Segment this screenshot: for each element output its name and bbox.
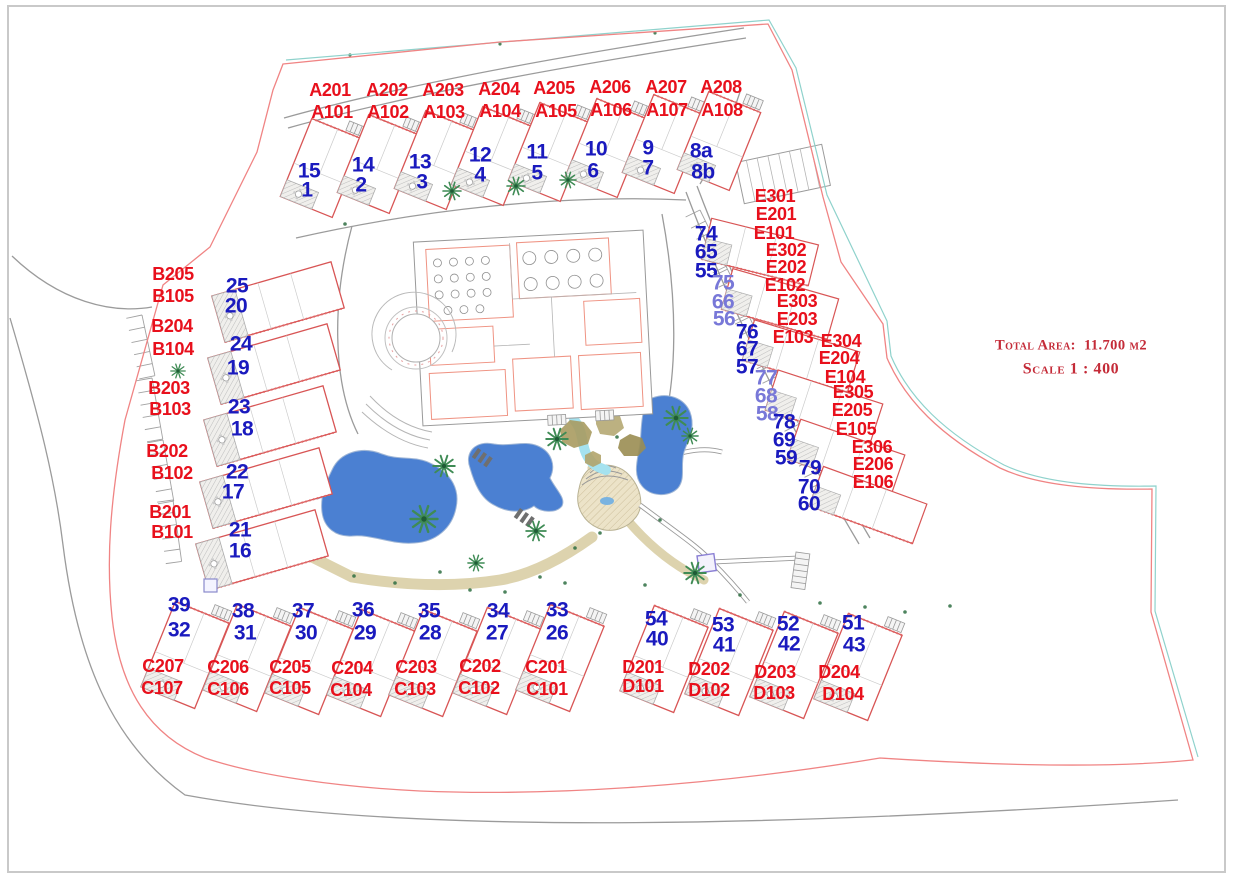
total-area-value: 11.700 м2 — [1084, 338, 1147, 354]
utility-box — [204, 579, 217, 592]
pool-middle — [468, 443, 562, 511]
scale-text: Scale 1 : 400 — [995, 361, 1147, 379]
site-plan-drawing — [0, 0, 1235, 881]
title-block: Total Area: 11.700 м2 Scale 1 : 400 — [995, 338, 1147, 379]
total-area-label: Total Area: — [995, 338, 1076, 354]
block-d-buildings — [620, 594, 907, 720]
block-b-buildings — [196, 262, 344, 590]
pool-left — [322, 451, 457, 544]
block-c-buildings — [141, 590, 609, 716]
parking-lot — [736, 144, 831, 203]
site-plan-page: A201A101151A202A102142A203A103133A204A10… — [0, 0, 1235, 881]
clubhouse — [413, 230, 653, 432]
block-e-buildings — [702, 218, 927, 543]
total-area-line: Total Area: 11.700 м2 — [995, 338, 1147, 355]
block-a-buildings — [280, 80, 765, 217]
